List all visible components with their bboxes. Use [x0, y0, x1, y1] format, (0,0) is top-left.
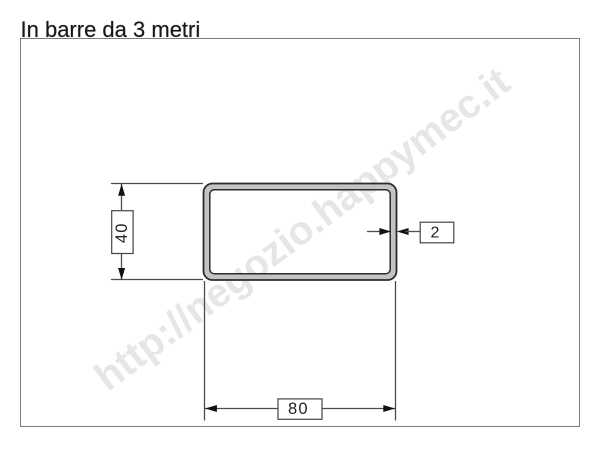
svg-text:2: 2	[431, 225, 440, 242]
svg-text:40: 40	[113, 222, 131, 243]
svg-text:80: 80	[288, 400, 309, 418]
